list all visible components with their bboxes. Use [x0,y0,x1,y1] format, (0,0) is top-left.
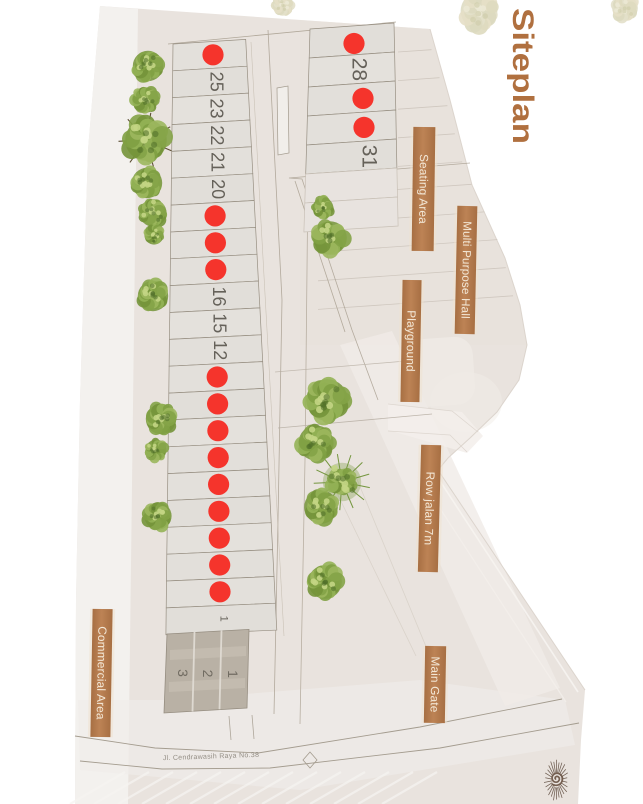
svg-text:15: 15 [210,313,230,333]
svg-text:31: 31 [358,145,381,168]
svg-text:28: 28 [348,58,371,81]
svg-text:Row jalan 7m: Row jalan 7m [422,471,438,545]
svg-text:2: 2 [200,670,216,678]
svg-text:20: 20 [208,179,228,199]
svg-text:23: 23 [207,98,227,118]
svg-text:Seating Area: Seating Area [416,154,431,224]
svg-text:Multi Purpose Hall: Multi Purpose Hall [458,221,473,319]
svg-text:Commercial Area: Commercial Area [94,626,110,720]
svg-text:1: 1 [225,670,241,678]
svg-text:21: 21 [207,152,227,172]
svg-text:3: 3 [175,669,191,677]
svg-text:Main Gate: Main Gate [428,656,443,713]
svg-text:12: 12 [210,340,230,360]
svg-text:22: 22 [207,125,227,145]
svg-text:Siteplan: Siteplan [506,8,539,144]
svg-text:1: 1 [217,616,229,622]
svg-text:Playground: Playground [403,310,418,372]
svg-text:16: 16 [209,286,229,306]
svg-text:25: 25 [206,72,226,92]
